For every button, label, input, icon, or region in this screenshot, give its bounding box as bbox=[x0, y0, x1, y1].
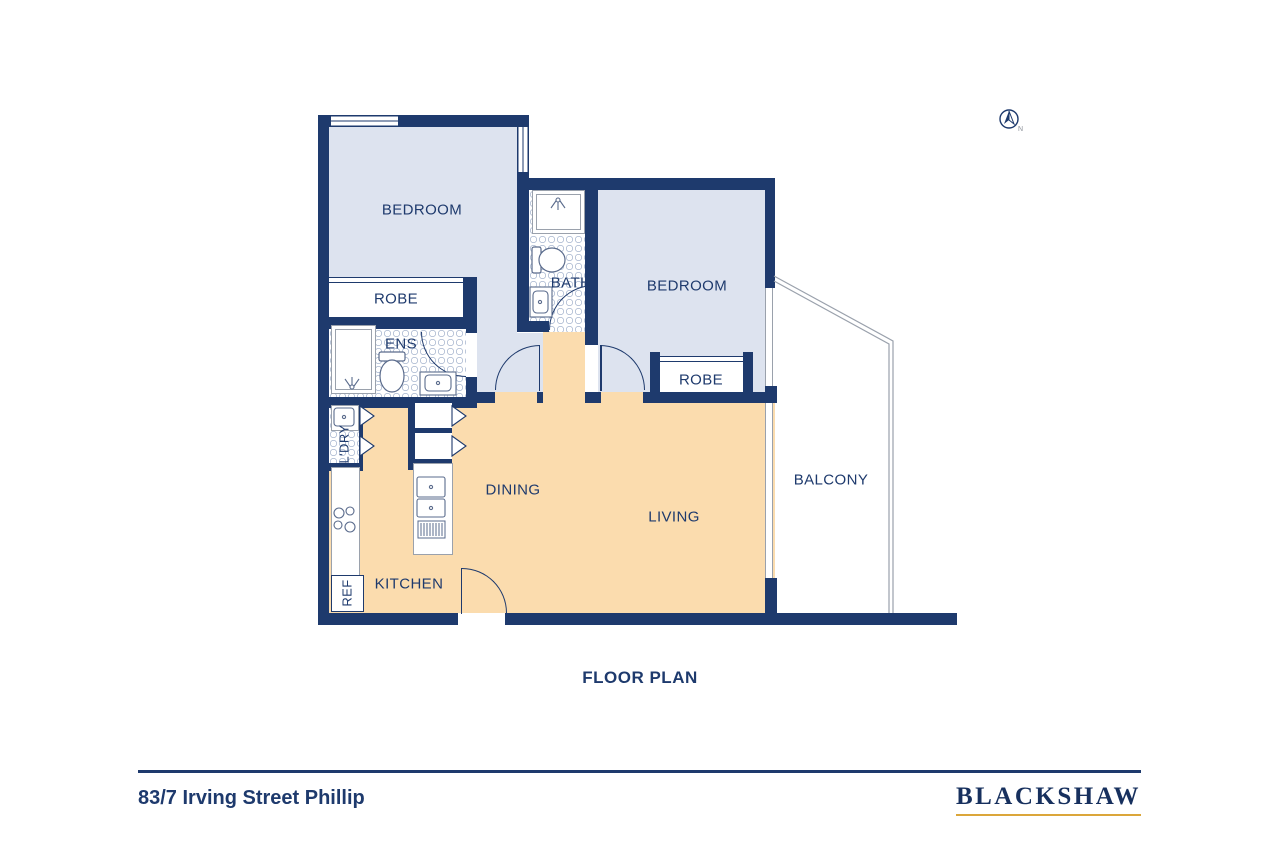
balcony-railing bbox=[774, 276, 893, 613]
room-label-bedroom-left: BEDROOM bbox=[382, 202, 462, 219]
wall bbox=[517, 178, 775, 190]
room-label-robe-left: ROBE bbox=[374, 291, 418, 308]
room-label-bedroom-right: BEDROOM bbox=[647, 278, 727, 295]
wall bbox=[359, 403, 363, 463]
floor-plan-page: BEDROOM ROBE ENS BATH BEDROOM ROBE L'DRY… bbox=[0, 0, 1280, 853]
window bbox=[517, 127, 529, 172]
window bbox=[765, 403, 773, 578]
bedroom-left-floor bbox=[477, 277, 517, 333]
wall bbox=[537, 392, 543, 403]
wall bbox=[765, 190, 775, 288]
window bbox=[331, 115, 398, 127]
room-label-laundry: L'DRY bbox=[337, 425, 352, 464]
compass-north-label: N bbox=[1018, 126, 1023, 133]
wall bbox=[743, 352, 753, 392]
wall bbox=[650, 352, 660, 392]
property-address: 83/7 Irving Street Phillip bbox=[138, 787, 365, 810]
room-label-ens: ENS bbox=[385, 336, 417, 353]
wall bbox=[466, 329, 477, 333]
plan-title: FLOOR PLAN bbox=[582, 668, 698, 688]
room-label-fridge: REF bbox=[340, 579, 355, 606]
room-label-bath: BATH bbox=[551, 275, 592, 292]
bath-door bbox=[592, 285, 594, 330]
entry-door bbox=[461, 568, 463, 614]
bedroom-right-door bbox=[600, 345, 602, 391]
blackshaw-logo: BLACKSHAW bbox=[956, 783, 1141, 816]
wall bbox=[505, 613, 957, 625]
closet-shelf bbox=[415, 433, 452, 459]
room-label-robe-right: ROBE bbox=[679, 372, 723, 389]
hallway-floor bbox=[543, 332, 585, 394]
bath-shower bbox=[532, 190, 585, 234]
room-label-living: LIVING bbox=[648, 509, 700, 526]
wall bbox=[318, 115, 329, 625]
kitchen-island bbox=[413, 463, 453, 555]
wall bbox=[643, 392, 775, 403]
bedroom-left-door bbox=[539, 345, 541, 391]
wall bbox=[585, 392, 601, 403]
compass-icon bbox=[1000, 110, 1018, 128]
wall bbox=[517, 178, 529, 332]
kitchen-counter bbox=[331, 467, 360, 576]
wall bbox=[517, 321, 549, 332]
ensuite-shower bbox=[331, 325, 376, 394]
room-label-balcony: BALCONY bbox=[794, 472, 869, 489]
window bbox=[765, 288, 773, 386]
closet-shelf bbox=[415, 403, 452, 428]
footer-divider bbox=[138, 770, 1141, 773]
wall bbox=[466, 392, 495, 403]
room-label-kitchen: KITCHEN bbox=[375, 576, 444, 593]
room-label-dining: DINING bbox=[486, 482, 541, 499]
wall bbox=[408, 408, 415, 459]
wall bbox=[318, 613, 458, 625]
wall bbox=[765, 578, 777, 613]
